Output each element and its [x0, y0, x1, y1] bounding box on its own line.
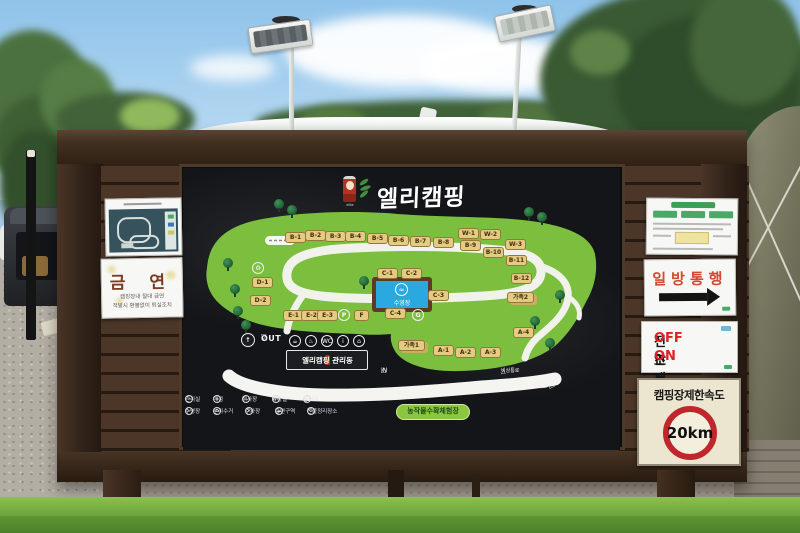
- table-text-line: [653, 248, 713, 251]
- site-box: A-4: [513, 327, 534, 338]
- site-box: B-2: [305, 230, 326, 241]
- small-logo-mark: [721, 326, 731, 331]
- no-smoking-title: 금 연: [102, 267, 182, 293]
- table-text-line: [713, 235, 731, 237]
- site-box: F: [354, 310, 369, 321]
- bollard-lamp: [26, 150, 36, 340]
- bollard-cap: [27, 150, 35, 157]
- right-arrow-icon: [659, 293, 707, 301]
- harvest-area-label: 농작물수확체험장: [396, 404, 470, 420]
- lantern-glass: [346, 181, 354, 190]
- aerial-map-notice: [104, 197, 182, 256]
- lamp-face: [500, 10, 550, 36]
- aerial-photo: [109, 208, 179, 252]
- trail-label: 산책로: [531, 383, 548, 390]
- site-box: A-1: [433, 345, 454, 356]
- map-tree: [545, 338, 555, 351]
- site-box: A-3: [480, 347, 501, 358]
- speed-limit-value: 20km: [667, 424, 713, 442]
- trees-right-sunlit: [570, 30, 630, 75]
- site-box: A-2: [455, 347, 476, 358]
- table-header-cell: [681, 211, 705, 218]
- site-box: C-3: [428, 290, 449, 301]
- map-tree: [359, 276, 369, 289]
- table-header-cell: [709, 211, 733, 218]
- no-smoking-line2: 적발시 환불없이 퇴실조치: [102, 301, 182, 310]
- small-logo-mark: [722, 307, 730, 311]
- speed-limit-sign: 캠핑장제한속도 20km: [637, 378, 741, 466]
- one-way-notice: 일방통행: [644, 259, 736, 317]
- site-box: B-10: [483, 247, 504, 258]
- brand-header: ellie 엘리캠핑: [333, 174, 513, 214]
- info-table-notice: [646, 198, 738, 256]
- right-arrow-head: [707, 288, 720, 306]
- aerial-legend-chip: [168, 222, 174, 226]
- small-logo-mark: [724, 365, 732, 369]
- aerial-road: [129, 235, 159, 250]
- table-text-line: [653, 223, 731, 226]
- map-tree: [223, 258, 233, 271]
- map-tree: [241, 320, 251, 333]
- notice-title-placeholder: [124, 203, 162, 206]
- site-box: W-3: [505, 239, 526, 250]
- site-box: B-8: [433, 237, 454, 248]
- site-box: C-2: [401, 268, 422, 279]
- campground-map: ellie 엘리캠핑 ≈ 수영장 B-1 B-2 B-3: [183, 168, 620, 450]
- cooking-icon: ♨: [305, 335, 317, 347]
- site-box: C-1: [377, 268, 398, 279]
- lamp-face: [253, 24, 308, 47]
- recycle-icon: ♻: [252, 262, 264, 274]
- site-box: B-1: [285, 232, 306, 243]
- site-box-family: 가족2: [507, 292, 534, 303]
- down-triangle-icon: ▽: [261, 334, 266, 341]
- cloud: [190, 55, 275, 81]
- emergency-label: 비상통로: [501, 368, 519, 374]
- headlight-notice: 전조등 OFF 안개등 ON: [641, 321, 738, 373]
- one-way-label: 일방통행: [645, 268, 735, 290]
- pool-label: 수영장: [376, 298, 428, 307]
- map-tree: [537, 212, 547, 225]
- no-smoking-notice: 금 연 캠핑장내 절대 금연 적발시 환불없이 퇴실조치: [100, 257, 183, 318]
- site-box: B-11: [506, 255, 527, 266]
- speed-limit-circle: 20km: [663, 406, 717, 460]
- map-tree: [524, 207, 534, 220]
- in-label: IN: [381, 367, 387, 374]
- site-box: D-2: [250, 295, 271, 306]
- map-tree: [555, 290, 565, 303]
- right-triangle-icon: ▷: [550, 383, 555, 390]
- campground-title: 엘리캠핑: [376, 176, 518, 214]
- map-tree: [233, 306, 243, 319]
- speed-limit-title: 캠핑장제한속도: [639, 387, 739, 403]
- aerial-legend-chip: [168, 230, 174, 234]
- fern-leaf-icon: [359, 178, 371, 202]
- table-text-line: [653, 228, 723, 231]
- site-box: W-2: [480, 229, 501, 240]
- site-box: B-7: [410, 236, 431, 247]
- table-highlight-box: [675, 232, 709, 244]
- trees-left-sunlit: [120, 98, 180, 134]
- site-box: C-4: [385, 308, 406, 319]
- site-box: B-5: [367, 233, 388, 244]
- aerial-building: [121, 243, 133, 248]
- swimming-pool: ≈ 수영장: [372, 277, 432, 312]
- map-tree: [287, 205, 297, 218]
- site-box: B-9: [460, 240, 481, 251]
- grass-foreground: [0, 516, 800, 533]
- drink-icon: ☕: [289, 335, 301, 347]
- site-box: B-12: [511, 273, 532, 284]
- no-smoking-line1: 캠핑장내 절대 금연: [102, 292, 182, 301]
- restroom-icon: WC: [321, 335, 333, 347]
- site-box: B-4: [345, 231, 366, 242]
- board-left-post: [57, 164, 103, 452]
- aerial-legend-chip: [168, 214, 174, 218]
- table-title-bar: [671, 202, 715, 208]
- campground-map-sign-photo: { "sign": { "brand": {"title": "엘리캠핑", "…: [0, 0, 800, 533]
- map-tree: [230, 284, 240, 297]
- site-box: W-1: [458, 228, 479, 239]
- up-arrow-icon: ↑: [241, 333, 255, 347]
- map-tree: [274, 199, 284, 212]
- site-box: B-3: [325, 231, 346, 242]
- store-icon: ⌂: [353, 335, 365, 347]
- site-box: E-3: [317, 310, 338, 321]
- lantern-logo-icon: ellie: [343, 176, 356, 202]
- table-header-cell: [653, 211, 677, 218]
- lamp-pole-left: [289, 46, 294, 138]
- info-icon: i: [337, 335, 349, 347]
- site-box: D-1: [252, 277, 273, 288]
- swim-icon: ≈: [395, 283, 408, 296]
- ember-area-icon: G: [412, 309, 424, 321]
- site-box-family: 가족1: [398, 340, 425, 351]
- management-building-label: 엘리캠핑 관리동: [286, 350, 368, 370]
- logo-subtext: ellie: [341, 203, 359, 207]
- trail-marker: 산책로 ▷: [531, 383, 571, 390]
- parking-icon: P: [338, 309, 350, 321]
- table-text-line: [653, 235, 671, 237]
- site-box: B-6: [388, 235, 409, 246]
